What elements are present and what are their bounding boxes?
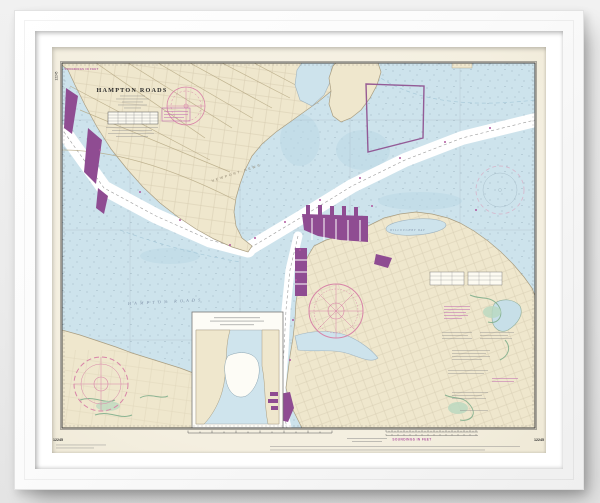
chart-title: HAMPTON ROADS [96, 87, 167, 94]
chart-image: UNITED STATES — EAST COAST HAMPTON ROADS [52, 47, 546, 453]
mat-board: UNITED STATES — EAST COAST HAMPTON ROADS [35, 31, 563, 469]
scale-bar [188, 431, 332, 434]
soundings-note-bottom: SOUNDINGS IN FEET [392, 438, 431, 442]
chart-number-bottom-left: 12245 [53, 438, 63, 442]
chart-number-bottom-right: 12245 [534, 438, 544, 442]
compass-rose-land-nw [167, 87, 205, 125]
land-sliver-top [452, 63, 472, 68]
label-hampton: HAMPTON [240, 59, 261, 63]
scale-bar-fine [386, 430, 478, 436]
inset-panel [192, 312, 283, 428]
chart-paper: UNITED STATES — EAST COAST HAMPTON ROADS [52, 47, 546, 453]
picture-frame: UNITED STATES — EAST COAST HAMPTON ROADS [14, 10, 584, 490]
chart-number-left-margin: 12245 [55, 71, 59, 80]
label-willoughby-bay: WILLOUGHBY BAY [390, 229, 426, 232]
soundings-note-top: SOUNDINGS IN FEET [65, 67, 99, 71]
photo-background: UNITED STATES — EAST COAST HAMPTON ROADS [0, 0, 600, 503]
compass-rose-center [309, 284, 363, 338]
title-block-table [108, 112, 158, 124]
bottom-margin-notes [56, 438, 520, 450]
